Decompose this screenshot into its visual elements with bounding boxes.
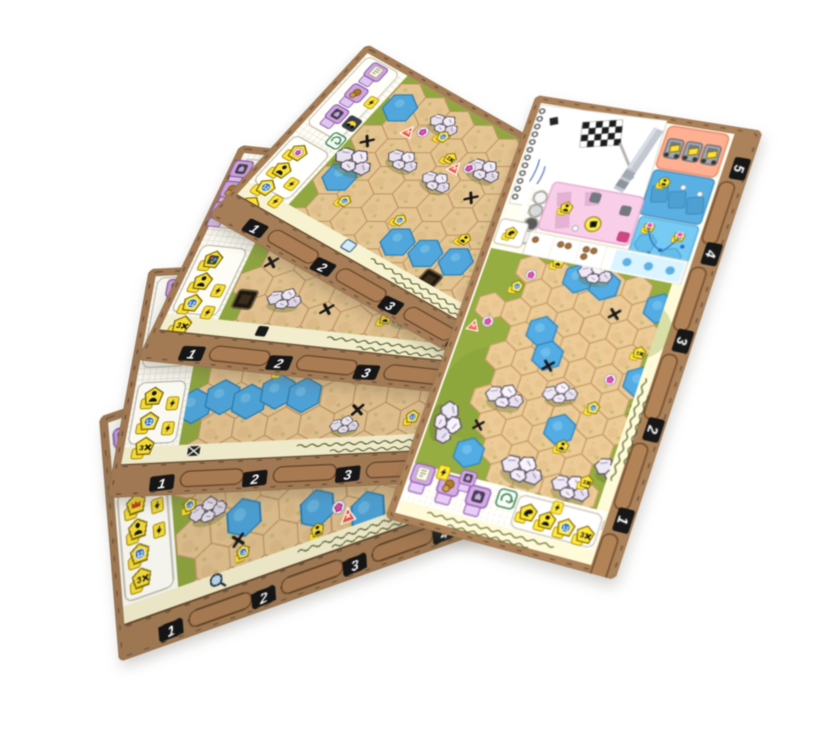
svg-text:3: 3 xyxy=(137,575,142,586)
